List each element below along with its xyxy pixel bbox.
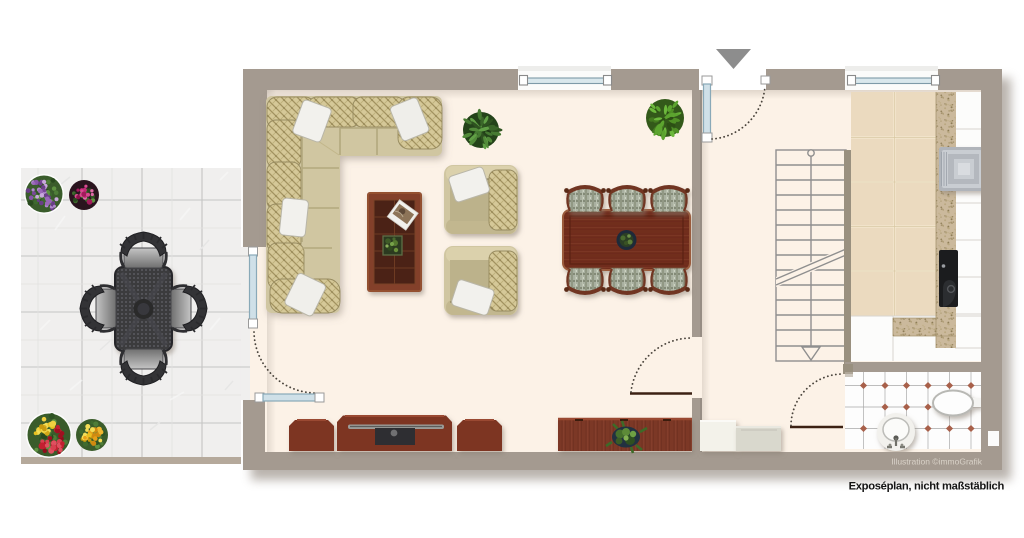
svg-text:Exposéplan, nicht maßstäblich: Exposéplan, nicht maßstäblich (849, 481, 1005, 493)
svg-text:Illustration ©immoGrafik: Illustration ©immoGrafik (891, 457, 983, 467)
